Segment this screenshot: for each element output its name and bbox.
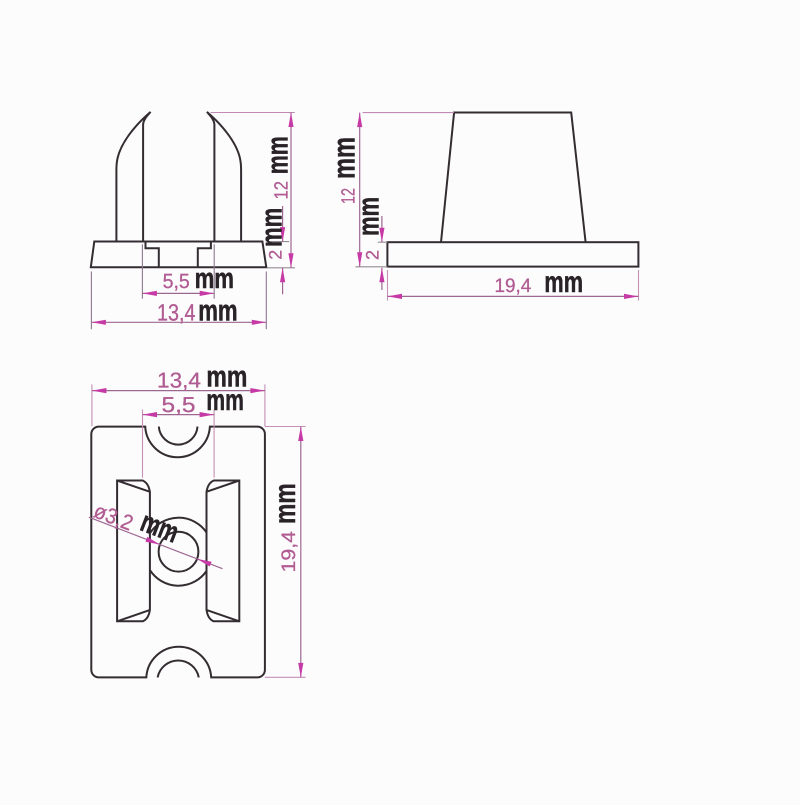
svg-text:mm: mm bbox=[326, 137, 361, 179]
svg-text:5,5: 5,5 bbox=[162, 393, 196, 417]
svg-text:mm: mm bbox=[206, 384, 244, 417]
svg-text:mm: mm bbox=[198, 294, 237, 327]
svg-text:mm: mm bbox=[195, 263, 234, 295]
svg-text:mm: mm bbox=[255, 208, 288, 247]
svg-text:19,4: 19,4 bbox=[278, 531, 300, 573]
svg-text:mm: mm bbox=[352, 197, 385, 236]
svg-text:mm: mm bbox=[544, 266, 583, 299]
svg-text:2: 2 bbox=[362, 250, 382, 260]
svg-text:13,4: 13,4 bbox=[157, 299, 196, 325]
svg-text:mm: mm bbox=[269, 483, 302, 524]
svg-text:13,4: 13,4 bbox=[157, 368, 201, 392]
svg-text:mm: mm bbox=[262, 136, 295, 174]
svg-text:5,5: 5,5 bbox=[163, 270, 190, 293]
svg-text:12: 12 bbox=[272, 181, 293, 200]
svg-text:19,4: 19,4 bbox=[495, 275, 532, 297]
svg-text:2: 2 bbox=[265, 250, 285, 260]
